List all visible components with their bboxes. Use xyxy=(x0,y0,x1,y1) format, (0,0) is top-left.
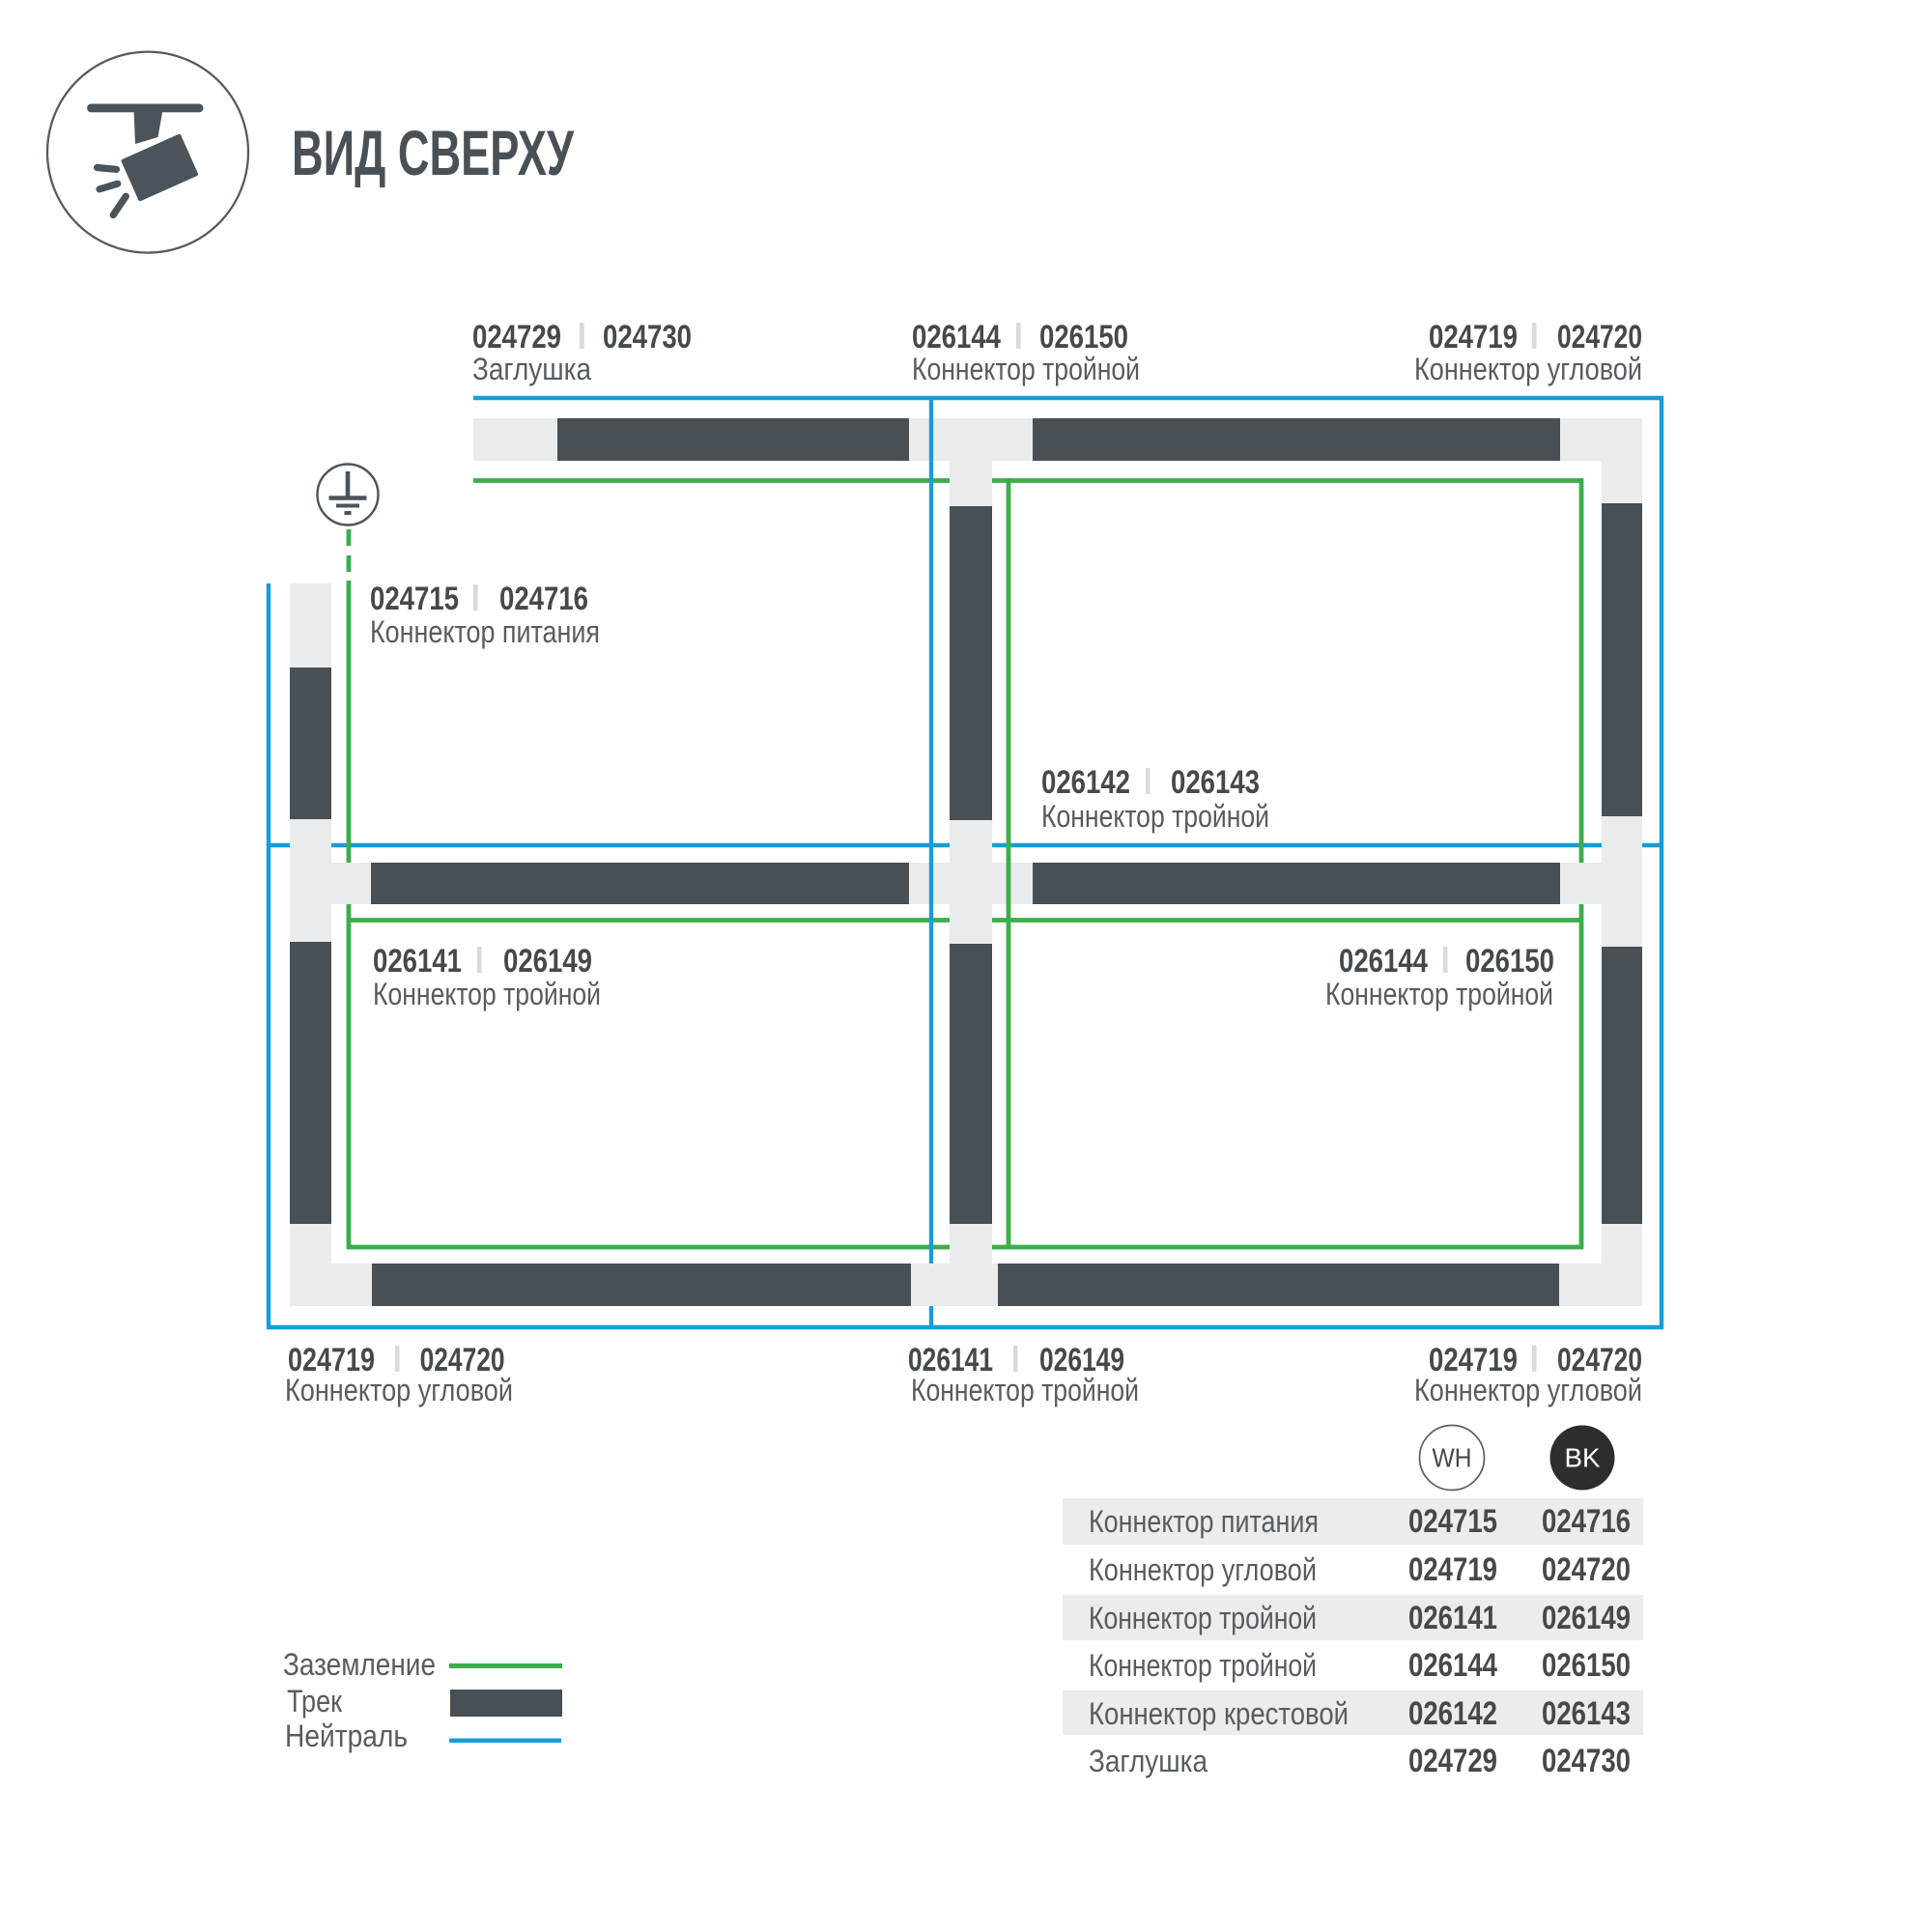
svg-text:026144: 026144 xyxy=(1339,943,1428,980)
svg-text:Коннектор тройной: Коннектор тройной xyxy=(1089,1601,1317,1635)
svg-text:026150: 026150 xyxy=(1542,1647,1631,1684)
svg-text:Коннектор тройной: Коннектор тройной xyxy=(912,352,1140,386)
svg-text:024730: 024730 xyxy=(1542,1743,1631,1779)
svg-text:Заземление: Заземление xyxy=(283,1647,436,1682)
svg-text:024729: 024729 xyxy=(1408,1743,1497,1779)
svg-text:024730: 024730 xyxy=(603,319,692,355)
svg-text:WH: WH xyxy=(1433,1443,1472,1473)
svg-text:Нейтраль: Нейтраль xyxy=(285,1719,408,1753)
svg-text:ВИД СВЕРХУ: ВИД СВЕРХУ xyxy=(292,117,575,188)
svg-text:024729: 024729 xyxy=(472,319,561,355)
svg-text:026143: 026143 xyxy=(1171,764,1260,801)
svg-text:Коннектор питания: Коннектор питания xyxy=(370,614,600,649)
svg-text:BK: BK xyxy=(1565,1443,1601,1473)
svg-text:026150: 026150 xyxy=(1465,943,1554,980)
svg-text:024719: 024719 xyxy=(1429,319,1518,355)
svg-text:Коннектор угловой: Коннектор угловой xyxy=(1414,1373,1642,1407)
svg-text:026141: 026141 xyxy=(1408,1600,1497,1636)
svg-text:024719: 024719 xyxy=(1408,1551,1497,1588)
svg-text:Коннектор крестовой: Коннектор крестовой xyxy=(1089,1696,1349,1731)
svg-text:026150: 026150 xyxy=(1039,319,1128,355)
svg-text:026144: 026144 xyxy=(912,319,1001,355)
svg-text:024720: 024720 xyxy=(1557,319,1642,355)
svg-text:Заглушка: Заглушка xyxy=(472,352,591,386)
svg-text:026144: 026144 xyxy=(1408,1647,1497,1684)
svg-text:026143: 026143 xyxy=(1542,1695,1631,1732)
svg-text:Трек: Трек xyxy=(287,1684,343,1719)
svg-text:024720: 024720 xyxy=(1542,1551,1631,1588)
svg-text:024716: 024716 xyxy=(499,581,588,617)
svg-text:024715: 024715 xyxy=(1408,1503,1497,1540)
svg-text:Коннектор тройной: Коннектор тройной xyxy=(1041,799,1269,834)
svg-text:026149: 026149 xyxy=(503,943,592,980)
svg-text:026149: 026149 xyxy=(1542,1600,1631,1636)
svg-text:Коннектор тройной: Коннектор тройной xyxy=(911,1373,1139,1407)
svg-text:Коннектор угловой: Коннектор угловой xyxy=(1414,352,1642,386)
svg-text:024716: 024716 xyxy=(1542,1503,1631,1540)
svg-text:024715: 024715 xyxy=(370,581,459,617)
svg-text:026142: 026142 xyxy=(1041,764,1130,801)
svg-text:Коннектор питания: Коннектор питания xyxy=(1089,1504,1319,1539)
svg-text:026141: 026141 xyxy=(373,943,462,980)
svg-text:Коннектор угловой: Коннектор угловой xyxy=(285,1373,513,1407)
svg-text:Коннектор угловой: Коннектор угловой xyxy=(1089,1552,1317,1587)
svg-text:Заглушка: Заглушка xyxy=(1089,1744,1207,1778)
svg-text:Коннектор тройной: Коннектор тройной xyxy=(1325,977,1553,1011)
svg-text:Коннектор тройной: Коннектор тройной xyxy=(1089,1648,1317,1683)
svg-text:026142: 026142 xyxy=(1408,1695,1497,1732)
svg-text:Коннектор тройной: Коннектор тройной xyxy=(373,977,601,1011)
